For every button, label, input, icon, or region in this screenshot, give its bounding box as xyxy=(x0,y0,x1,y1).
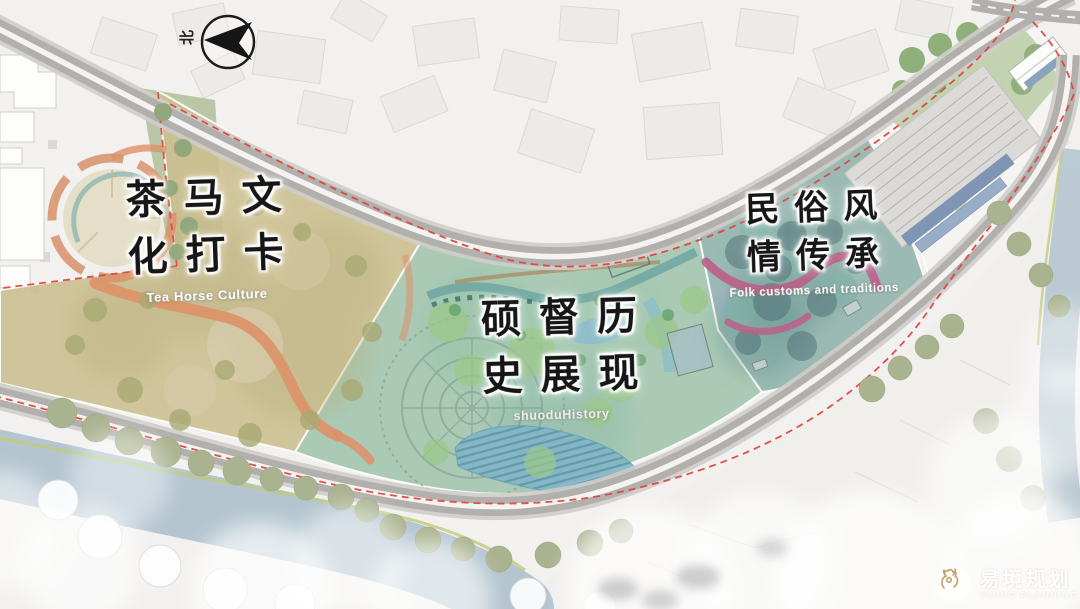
north-label: 北 xyxy=(176,27,194,45)
masterplan-canvas: 北 茶马文 化打卡 Tea Horse Culture 硕督历 史展现 shuo… xyxy=(0,0,1080,609)
north-arrow xyxy=(202,16,254,68)
masterplan-drawing xyxy=(0,0,1080,609)
